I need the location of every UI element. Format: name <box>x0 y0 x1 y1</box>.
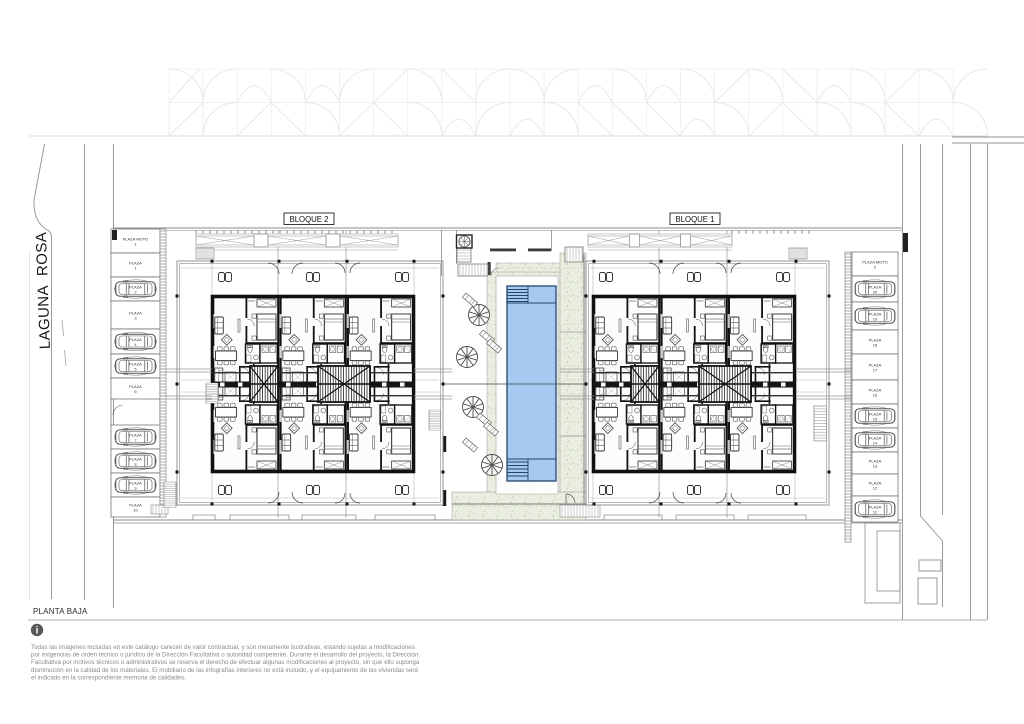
svg-text:19: 19 <box>873 317 878 322</box>
svg-text:BLOQUE 1: BLOQUE 1 <box>676 215 715 224</box>
svg-text:i: i <box>36 626 39 637</box>
svg-text:16: 16 <box>873 393 878 398</box>
svg-text:Todas las imágenes incluidas e: Todas las imágenes incluidas en este cat… <box>31 644 415 651</box>
svg-text:12: 12 <box>873 486 878 491</box>
svg-text:20: 20 <box>873 290 878 295</box>
svg-text:Facultativa por motivos técnic: Facultativa por motivos técnicos o admin… <box>31 659 420 666</box>
svg-text:17: 17 <box>873 368 878 373</box>
svg-text:disminución en la calidad de: disminución en la calidad de los materia… <box>31 667 418 674</box>
svg-text:PLANTA BAJA: PLANTA BAJA <box>33 607 88 616</box>
svg-text:BLOQUE 2: BLOQUE 2 <box>290 215 329 224</box>
svg-text:15: 15 <box>873 417 878 422</box>
svg-text:18: 18 <box>873 343 878 348</box>
svg-text:13: 13 <box>873 464 878 469</box>
svg-text:el indicado en la correspondie: el indicado en la correspondiente memori… <box>31 674 186 681</box>
svg-text:10: 10 <box>133 508 138 513</box>
svg-text:por exigencias de orden técni: por exigencias de orden técnico o jurídi… <box>31 652 419 659</box>
svg-text:14: 14 <box>873 441 878 446</box>
